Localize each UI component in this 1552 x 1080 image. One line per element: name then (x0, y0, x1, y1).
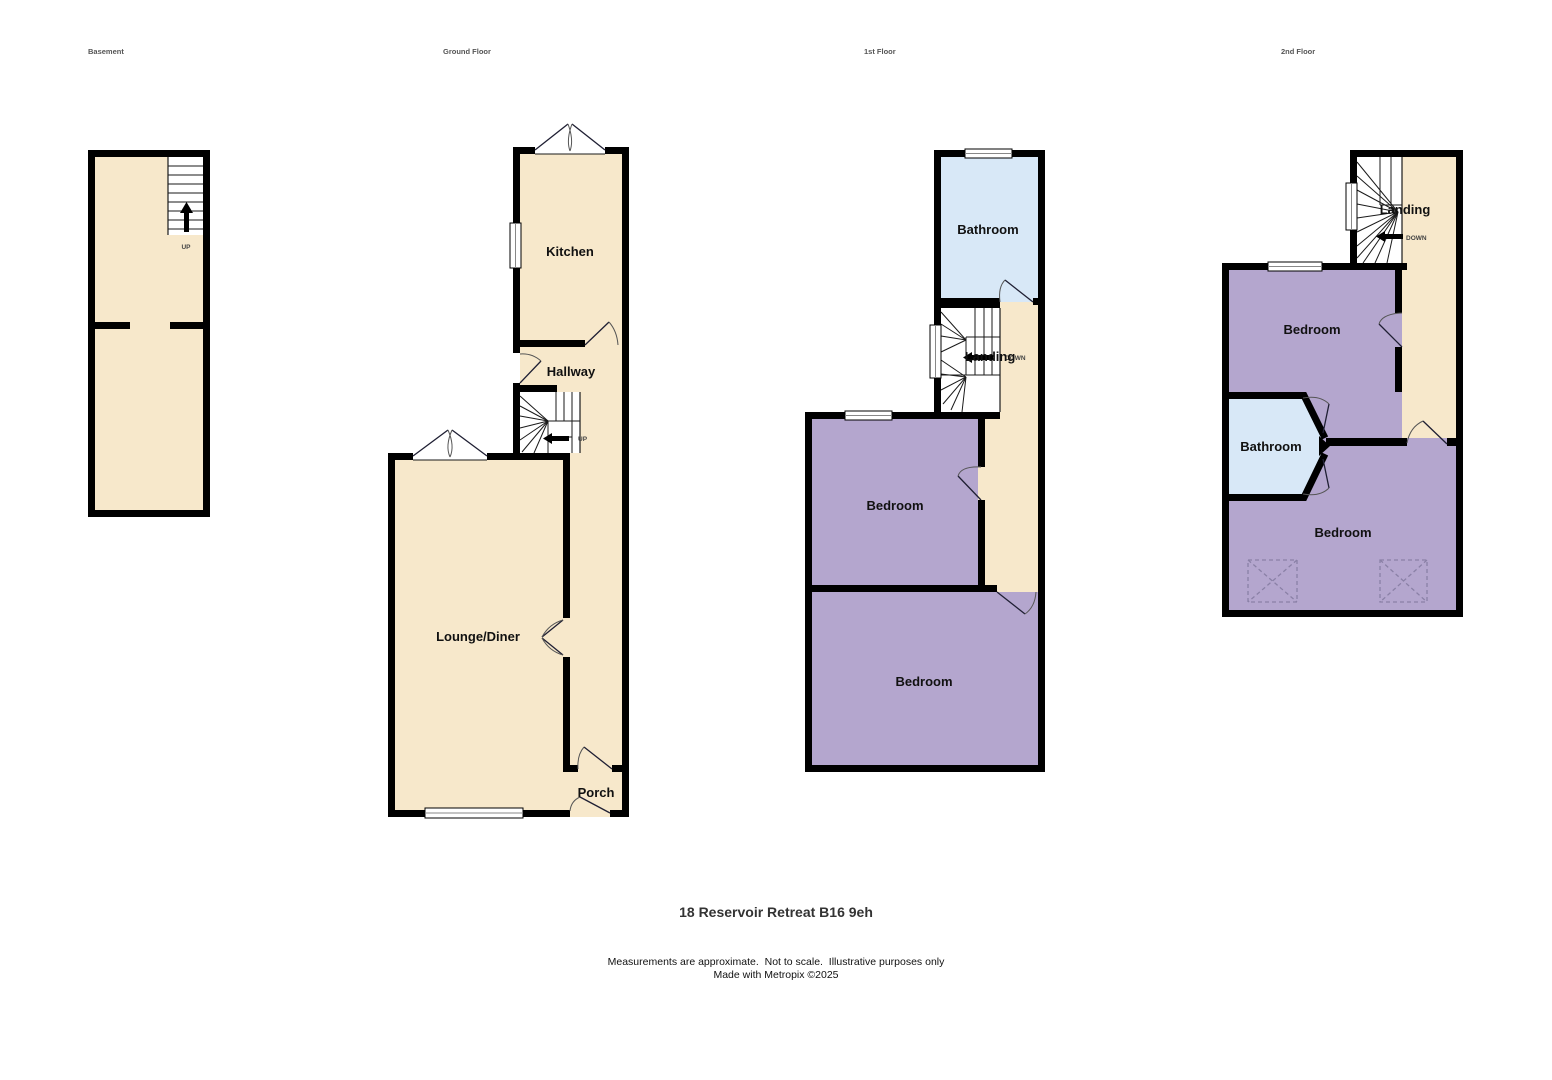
second-bedroom-back-label: Bedroom (1314, 525, 1371, 540)
first-bedroom-front-wall-upper (978, 419, 985, 467)
first-bedroom-front-wall-lower (978, 500, 985, 585)
kitchen-label: Kitchen (546, 244, 594, 259)
first-bedroom-front-top-wall (805, 412, 1000, 419)
first-bathroom-window (965, 149, 1012, 158)
lounge-right-wall-upper (563, 453, 570, 618)
first-floor-title: 1st Floor (864, 47, 896, 56)
first-landing-window (930, 325, 941, 378)
kitchen-window (510, 223, 521, 268)
second-bedroom-front-wall-upper (1395, 270, 1402, 313)
basement-floorplan: UP (88, 150, 210, 517)
kitchen-french-doors (535, 124, 605, 154)
basement-partition-wall-right (170, 322, 203, 329)
first-bedroom-front-label: Bedroom (866, 498, 923, 513)
second-bathroom-label: Bathroom (1240, 439, 1301, 454)
ground-floor-title: Ground Floor (443, 47, 491, 56)
basement-floor-title: Basement (88, 47, 124, 56)
second-landing-label: Landing (1380, 202, 1431, 217)
second-divider-wall (1326, 438, 1407, 446)
second-floorplan: DOWN (1222, 150, 1463, 617)
first-bedroom-back-label: Bedroom (895, 674, 952, 689)
porch-top-wall-right (612, 765, 629, 772)
first-floorplan: DOWN Bathroom Landing Be (805, 149, 1045, 772)
second-landing-window (1346, 183, 1357, 230)
first-bathroom-wall-stub (1033, 298, 1038, 305)
ground-floorplan: UP (388, 124, 629, 818)
lounge-french-doors (413, 430, 487, 460)
basement-partition-wall-left (95, 322, 130, 329)
porch-top-wall-left (563, 765, 578, 772)
floorplan-page: Basement Ground Floor 1st Floor 2nd Floo… (0, 0, 1552, 1080)
footer: 18 Reservoir Retreat B16 9eh Measurement… (608, 904, 945, 981)
ground-stairs-label: UP (578, 436, 588, 443)
first-landing-label: Landing (965, 349, 1016, 364)
porch-label: Porch (578, 785, 615, 800)
lounge-right-wall-lower (563, 657, 570, 765)
second-divider-wall-stub (1447, 438, 1456, 446)
kitchen-bottom-wall (513, 340, 585, 347)
second-bedroom-front-label: Bedroom (1283, 322, 1340, 337)
ground-stairs (513, 385, 580, 460)
second-bedroom-front-window (1268, 262, 1322, 271)
hallway-label: Hallway (547, 364, 596, 379)
lounge-window (425, 808, 523, 818)
lounge-label: Lounge/Diner (436, 629, 520, 644)
second-floor-title: 2nd Floor (1281, 47, 1315, 56)
basement-stairs-label: UP (181, 244, 191, 251)
property-title: 18 Reservoir Retreat B16 9eh (679, 904, 873, 920)
second-top-wall-extension (1350, 263, 1407, 270)
first-bedroom-divider-wall (805, 585, 997, 592)
first-bedroom-front-window (845, 411, 892, 420)
second-stairs-label: DOWN (1406, 235, 1427, 242)
disclaimer-line1: Measurements are approximate. Not to sca… (608, 956, 945, 968)
disclaimer-line2: Made with Metropix ©2025 (713, 969, 838, 981)
second-landing-area (1402, 157, 1456, 438)
second-bedroom-front-wall-lower (1395, 347, 1402, 392)
first-bathroom-label: Bathroom (957, 222, 1018, 237)
